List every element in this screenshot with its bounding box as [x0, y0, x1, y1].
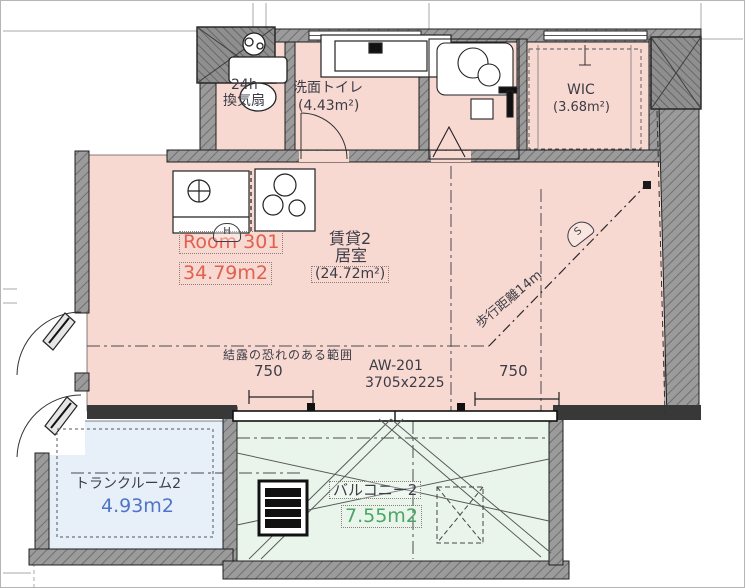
room-area: 34.79m2 — [179, 262, 272, 285]
dim-left-label: 750 — [254, 363, 283, 379]
wic-label: WIC — [567, 83, 595, 98]
washroom-area: (4.43m²) — [298, 99, 359, 114]
main-room-name-line1: 賃貸2 — [329, 230, 371, 247]
washroom-label: 洗面トイレ — [293, 81, 363, 96]
trunk-room-area: 4.93m2 — [101, 496, 174, 517]
balcony-right-wall — [549, 419, 563, 565]
left-wall-upper — [75, 151, 89, 313]
trunk-bottom-wall — [29, 549, 233, 565]
washbasin-icon — [321, 35, 451, 77]
trunk-room-label: トランクルーム2 — [75, 477, 181, 492]
vent-left-wall — [200, 81, 216, 159]
balcony-area: 7.55m2 — [341, 505, 422, 528]
dim-right-label: 750 — [499, 363, 528, 379]
vent-label-line2: 換気扇 — [223, 94, 265, 109]
upper-band-bottom-wall — [167, 150, 661, 162]
vent-label-line1: 24h — [231, 78, 258, 93]
heat-detector-icon: H — [213, 223, 241, 242]
window-size-label: 3705x2225 — [365, 376, 445, 391]
left-wall-chunk — [75, 373, 89, 391]
kitchen-icon — [173, 169, 315, 233]
trunk-left-wall — [35, 453, 49, 553]
room-bottom-right-wall — [553, 405, 701, 420]
balcony-label: バルコニー2 — [329, 481, 421, 499]
main-room-name-line2: 居室 — [335, 247, 367, 264]
window-note: 結露の恐れのある範囲 — [223, 349, 353, 362]
walk-end-marker — [643, 181, 651, 189]
main-room-area: (24.72m²) — [311, 266, 389, 283]
balcony-bottom-wall — [223, 561, 569, 579]
window-id-label: AW-201 — [369, 359, 423, 374]
trunk-right-wall — [223, 407, 237, 567]
room-trunk-wall — [87, 405, 237, 419]
floor-plan: 24h 換気扇 洗面トイレ (4.43m²) WIC (3.68m²) Room… — [0, 0, 745, 588]
wic-area: (3.68m²) — [553, 101, 610, 115]
